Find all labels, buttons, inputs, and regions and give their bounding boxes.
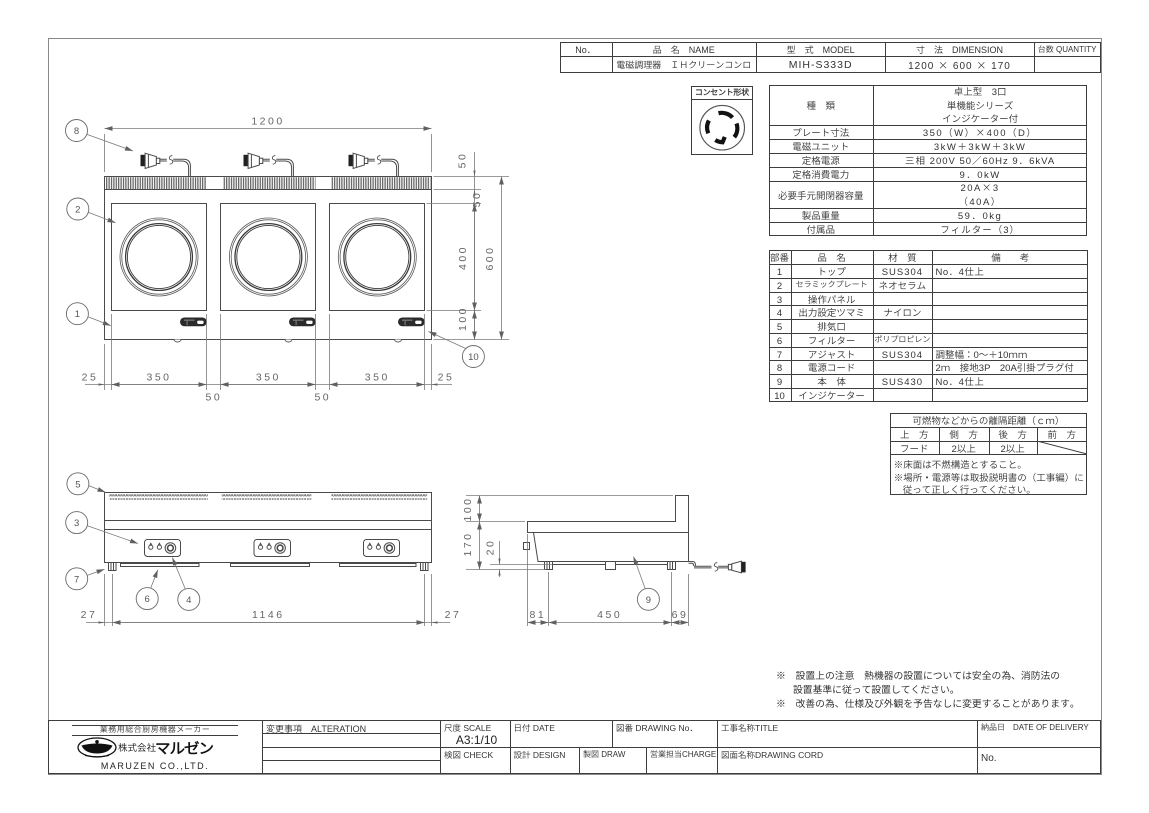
svg-text:8: 8 bbox=[74, 126, 79, 137]
svg-text:9: 9 bbox=[646, 595, 651, 606]
svg-text:5: 5 bbox=[75, 479, 80, 490]
svg-text:10: 10 bbox=[468, 352, 479, 363]
svg-text:7: 7 bbox=[74, 574, 79, 585]
svg-text:27: 27 bbox=[81, 609, 98, 621]
svg-text:1200: 1200 bbox=[251, 116, 284, 128]
svg-text:170: 170 bbox=[462, 531, 474, 556]
svg-text:100: 100 bbox=[457, 306, 469, 331]
svg-text:6: 6 bbox=[145, 594, 150, 605]
svg-text:81: 81 bbox=[530, 609, 547, 621]
svg-text:350: 350 bbox=[256, 372, 281, 384]
svg-text:50: 50 bbox=[457, 152, 469, 169]
svg-text:1146: 1146 bbox=[252, 609, 285, 621]
svg-text:350: 350 bbox=[365, 372, 390, 384]
svg-text:350: 350 bbox=[146, 372, 171, 384]
svg-text:2: 2 bbox=[75, 205, 80, 216]
svg-text:100: 100 bbox=[462, 496, 474, 521]
svg-text:400: 400 bbox=[457, 245, 469, 270]
svg-text:25: 25 bbox=[82, 372, 99, 384]
svg-text:50: 50 bbox=[314, 392, 331, 404]
svg-text:50: 50 bbox=[471, 191, 483, 208]
svg-text:50: 50 bbox=[206, 392, 223, 404]
svg-text:450: 450 bbox=[597, 609, 622, 621]
svg-text:69: 69 bbox=[672, 609, 689, 621]
svg-text:1: 1 bbox=[75, 309, 80, 320]
svg-text:4: 4 bbox=[186, 595, 191, 606]
svg-text:3: 3 bbox=[74, 518, 79, 529]
svg-text:25: 25 bbox=[438, 372, 455, 384]
svg-text:600: 600 bbox=[484, 245, 496, 270]
svg-text:27: 27 bbox=[445, 609, 462, 621]
svg-text:20: 20 bbox=[484, 539, 496, 556]
